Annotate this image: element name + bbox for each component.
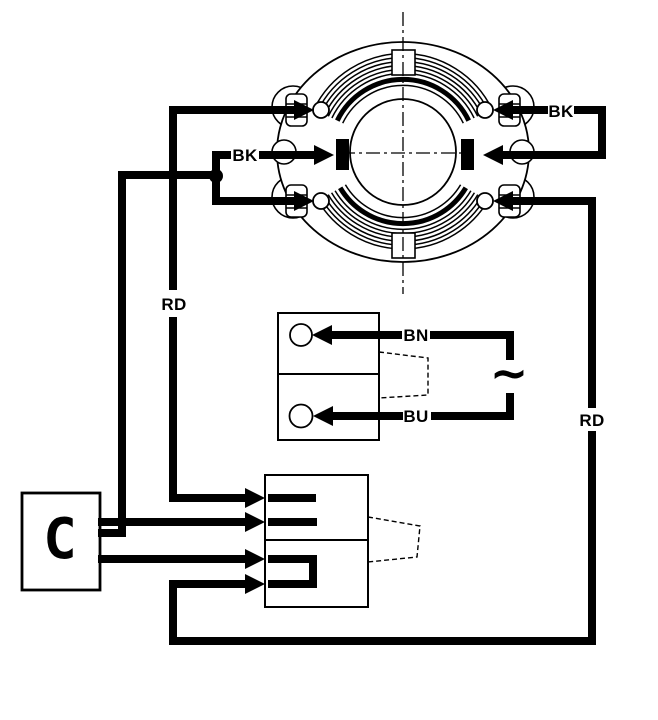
- arrowhead: [312, 325, 332, 345]
- wire-label-rd-right: RD: [579, 411, 604, 430]
- capacitor-symbol: C: [43, 507, 77, 572]
- arrowhead: [245, 512, 265, 532]
- wire-rd-left-lower: [173, 317, 247, 498]
- arrowhead: [245, 488, 265, 508]
- wire-label-bn: BN: [403, 326, 428, 345]
- ac-waveform-symbol: ~: [490, 346, 529, 400]
- wiring-diagram-page: C ~ BK BK RD RD BN BU: [0, 0, 658, 720]
- main-connector: [265, 475, 420, 607]
- arrowhead: [245, 574, 265, 594]
- wire-rd-right-lower: [173, 431, 592, 641]
- wire-box-to-junction: [98, 175, 212, 533]
- supply-terminal-bu: [290, 405, 313, 428]
- wire-label-rd-left: RD: [161, 295, 186, 314]
- wiring-diagram: C ~ BK BK RD RD BN BU: [0, 0, 658, 720]
- winding-terminal: [313, 193, 329, 209]
- wire-label-bu: BU: [403, 407, 428, 426]
- winding-terminal: [477, 193, 493, 209]
- winding-terminal: [313, 102, 329, 118]
- supply-plug-outline: [379, 352, 428, 398]
- arrowhead: [313, 406, 333, 426]
- wire-label-bk-right: BK: [548, 102, 574, 121]
- winding-terminal: [477, 102, 493, 118]
- arrowhead: [245, 549, 265, 569]
- wire-label-bk-left: BK: [232, 146, 258, 165]
- main-plug-outline: [368, 517, 420, 562]
- connector-pin-link: [268, 559, 313, 584]
- brush-right: [461, 139, 474, 170]
- brush-left: [336, 139, 349, 170]
- supply-terminal-bn: [290, 324, 312, 346]
- capacitor-box: C: [22, 493, 100, 590]
